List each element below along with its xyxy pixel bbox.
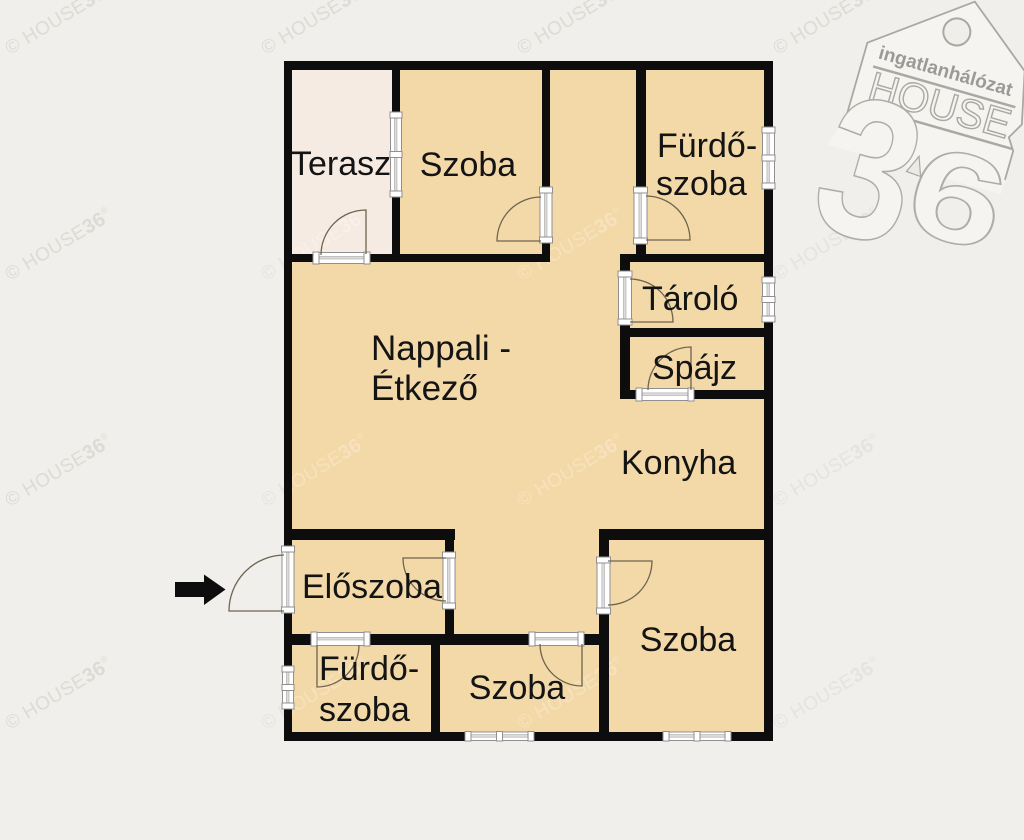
svg-text:Fürdő-: Fürdő- xyxy=(319,650,419,688)
svg-text:Spájz: Spájz xyxy=(652,349,737,387)
svg-text:Tároló: Tároló xyxy=(642,280,738,318)
svg-text:Fürdő-: Fürdő- xyxy=(657,127,757,165)
svg-text:Konyha: Konyha xyxy=(621,444,736,482)
svg-text:Előszoba: Előszoba xyxy=(302,568,442,606)
svg-text:szoba: szoba xyxy=(319,691,410,729)
svg-text:Szoba: Szoba xyxy=(420,146,516,184)
svg-text:Étkező: Étkező xyxy=(371,369,478,408)
svg-text:Terasz: Terasz xyxy=(291,145,391,183)
svg-text:Szoba: Szoba xyxy=(640,621,736,659)
svg-text:Nappali -: Nappali - xyxy=(371,329,511,368)
svg-text:szoba: szoba xyxy=(656,165,747,203)
svg-text:Szoba: Szoba xyxy=(469,669,565,707)
